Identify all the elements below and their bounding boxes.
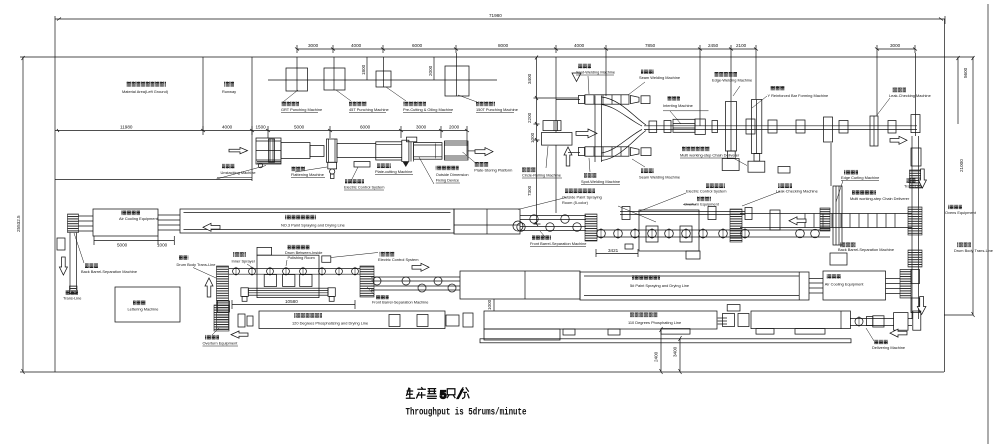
svg-text:Multi working-step Chain Deliv: Multi working-step Chain Deliverer — [680, 153, 740, 158]
svg-text:3400: 3400 — [673, 346, 678, 357]
svg-text:6000: 6000 — [412, 43, 423, 48]
svg-text:4000: 4000 — [574, 43, 585, 48]
svg-text:Drum Body Trans-Line: Drum Body Trans-Line — [177, 262, 216, 267]
svg-text:150T Punching Machine: 150T Punching Machine — [476, 107, 518, 112]
svg-text:Front Barrel-Separation Machin: Front Barrel-Separation Machine — [372, 300, 428, 305]
svg-text:2400: 2400 — [654, 351, 659, 362]
svg-text:Material Area(Left Ground): Material Area(Left Ground) — [122, 89, 169, 94]
svg-text:5: 5 — [440, 388, 447, 402]
svg-text:25532.5: 25532.5 — [16, 215, 21, 232]
svg-text:Seam Welding Machine: Seam Welding Machine — [639, 75, 680, 80]
svg-text:3000: 3000 — [416, 125, 427, 130]
svg-text:10580: 10580 — [285, 299, 298, 304]
svg-text:Unstacking Machine: Unstacking Machine — [221, 170, 256, 175]
svg-text:Spot-Welding Machine: Spot-Welding Machine — [581, 179, 620, 184]
svg-text:Room (5-color): Room (5-color) — [562, 200, 589, 205]
svg-text:7300: 7300 — [527, 185, 532, 196]
svg-text:Electric Control System: Electric Control System — [378, 257, 418, 262]
svg-text:4000: 4000 — [351, 43, 362, 48]
svg-text:Overturn Equipment: Overturn Equipment — [684, 202, 720, 207]
svg-text:2200: 2200 — [527, 112, 532, 123]
svg-text:Trans-Line: Trans-Line — [63, 296, 81, 301]
svg-text:1000: 1000 — [487, 299, 492, 310]
svg-text:Delivering Machine: Delivering Machine — [872, 345, 905, 350]
svg-text:Leak-Checking Machine: Leak-Checking Machine — [776, 189, 818, 194]
svg-text:3000: 3000 — [890, 43, 901, 48]
svg-text:Fixing Device: Fixing Device — [436, 178, 459, 183]
svg-text:Outside Dimension: Outside Dimension — [436, 172, 469, 177]
svg-text:110 Degrees Phosphating Line: 110 Degrees Phosphating Line — [628, 320, 681, 325]
svg-text:1000: 1000 — [530, 132, 535, 143]
svg-text:5000: 5000 — [117, 243, 128, 248]
svg-text:Back Barrel-Separation Machine: Back Barrel-Separation Machine — [81, 269, 137, 274]
svg-text:Air Cooling Equipment: Air Cooling Equipment — [119, 216, 159, 221]
svg-text:11980: 11980 — [120, 125, 133, 130]
svg-text:21000: 21000 — [959, 159, 964, 172]
svg-text:Outside Paint Spraying: Outside Paint Spraying — [562, 195, 602, 200]
svg-text:2000: 2000 — [428, 65, 433, 76]
svg-text:6000: 6000 — [360, 125, 371, 130]
svg-text:Air Cooling Equipment: Air Cooling Equipment — [825, 281, 865, 286]
svg-text:Electric Control System: Electric Control System — [686, 189, 726, 194]
svg-text:3400: 3400 — [527, 73, 532, 84]
svg-text:5# Paint Spraying and Drying L: 5# Paint Spraying and Drying Line — [630, 283, 689, 288]
svg-text:7850: 7850 — [645, 43, 656, 48]
svg-text:Circle-Rolling Machine: Circle-Rolling Machine — [522, 173, 561, 178]
svg-text:Runway: Runway — [222, 89, 236, 94]
svg-text:Flattening Machine: Flattening Machine — [291, 172, 324, 177]
svg-text:Back Barrel-Separation Machine: Back Barrel-Separation Machine — [838, 247, 894, 252]
svg-text:Trans-Line: Trans-Line — [904, 184, 922, 189]
svg-text:Lettering Machine: Lettering Machine — [128, 307, 159, 312]
svg-text:2000: 2000 — [449, 125, 460, 130]
svg-text:Overturn Equipment: Overturn Equipment — [203, 340, 239, 345]
svg-text:120 Degrees Phosphatizing and: 120 Degrees Phosphatizing and Drying Lin… — [292, 321, 368, 326]
svg-text:Plate-cutting Machine: Plate-cutting Machine — [375, 169, 412, 174]
svg-text:Spot-Welding Machine: Spot-Welding Machine — [576, 70, 615, 75]
svg-text:Y Reinforced Bar Forming Machi: Y Reinforced Bar Forming Machine — [768, 93, 829, 98]
svg-text:1500: 1500 — [256, 125, 267, 130]
svg-text:/: / — [457, 388, 464, 402]
svg-text:71980: 71980 — [489, 13, 502, 18]
svg-text:3000: 3000 — [308, 43, 319, 48]
svg-text:4000: 4000 — [222, 125, 233, 130]
svg-text:Multi working-step Chain Deliv: Multi working-step Chain Deliverer — [850, 196, 910, 201]
svg-text:Pre-Cutting & Oiling Machine: Pre-Cutting & Oiling Machine — [403, 107, 453, 112]
svg-text:Edge-Welding Machine: Edge-Welding Machine — [712, 78, 752, 83]
svg-text:Inner Sprayer: Inner Sprayer — [232, 259, 256, 264]
svg-text:5000: 5000 — [294, 125, 305, 130]
svg-text:3421: 3421 — [608, 248, 619, 253]
svg-text:1800: 1800 — [361, 64, 366, 75]
svg-text:2100: 2100 — [736, 43, 747, 48]
svg-text:45T Punching Machine: 45T Punching Machine — [349, 107, 389, 112]
svg-text:Edge Curling Machine: Edge Curling Machine — [841, 175, 879, 180]
svg-text:Polishing Room: Polishing Room — [288, 255, 315, 260]
svg-text:Plate-Storing Platform: Plate-Storing Platform — [474, 168, 512, 173]
svg-text:Front Barrel-Separation Machin: Front Barrel-Separation Machine — [530, 241, 586, 246]
svg-text:Seam Welding Machine: Seam Welding Machine — [639, 175, 680, 180]
svg-text:Interting Machine: Interting Machine — [663, 103, 693, 108]
svg-text:8000: 8000 — [498, 43, 509, 48]
svg-text:Electric Control System: Electric Control System — [344, 185, 384, 190]
svg-text:Leak-Checking Machine: Leak-Checking Machine — [889, 93, 931, 98]
svg-text:1000: 1000 — [157, 243, 168, 248]
svg-text:Ovens Equipment: Ovens Equipment — [945, 210, 977, 215]
svg-text:NO.3 Paint Spraying and Drying: NO.3 Paint Spraying and Drying Line — [281, 223, 345, 228]
svg-text:GRT Punching Machine: GRT Punching Machine — [281, 107, 322, 112]
svg-text:Throughput is 5drums/minute: Throughput is 5drums/minute — [406, 407, 527, 419]
svg-text:2450: 2450 — [708, 43, 719, 48]
svg-text:5600: 5600 — [963, 67, 968, 78]
svg-text:Drum Body Trans-Line: Drum Body Trans-Line — [954, 248, 993, 253]
